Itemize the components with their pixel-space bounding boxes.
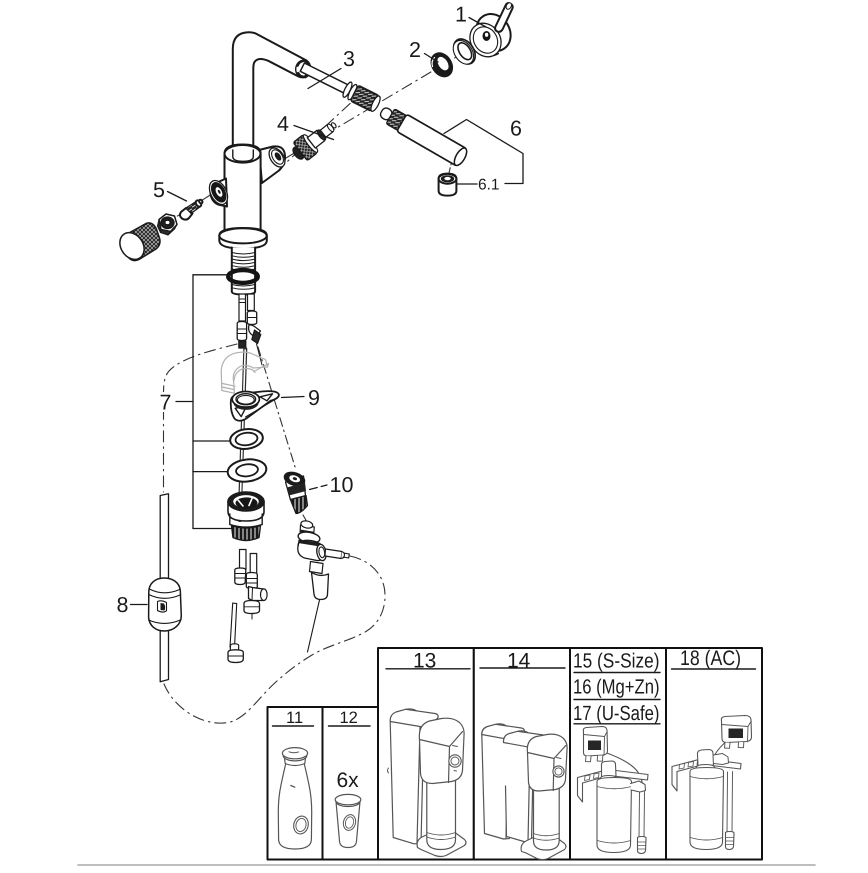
svg-text:12: 12 [340, 709, 358, 727]
svg-text:11: 11 [286, 709, 303, 727]
svg-text:10: 10 [330, 473, 354, 497]
svg-text:14: 14 [507, 650, 531, 673]
svg-text:15 (S-Size): 15 (S-Size) [573, 650, 660, 673]
svg-text:2: 2 [409, 38, 421, 62]
svg-text:6: 6 [510, 117, 522, 141]
svg-text:4: 4 [277, 112, 289, 136]
svg-text:16 (Mg+Zn): 16 (Mg+Zn) [573, 676, 660, 699]
svg-text:6x: 6x [337, 769, 360, 792]
svg-text:17 (U-Safe): 17 (U-Safe) [573, 702, 660, 725]
svg-text:18 (AC): 18 (AC) [680, 647, 741, 670]
svg-text:7: 7 [160, 391, 172, 415]
svg-text:6.1: 6.1 [478, 177, 500, 194]
svg-text:3: 3 [343, 47, 355, 71]
svg-text:1: 1 [455, 3, 467, 27]
svg-text:5: 5 [153, 178, 165, 202]
svg-text:9: 9 [308, 386, 320, 410]
svg-text:8: 8 [117, 593, 129, 617]
